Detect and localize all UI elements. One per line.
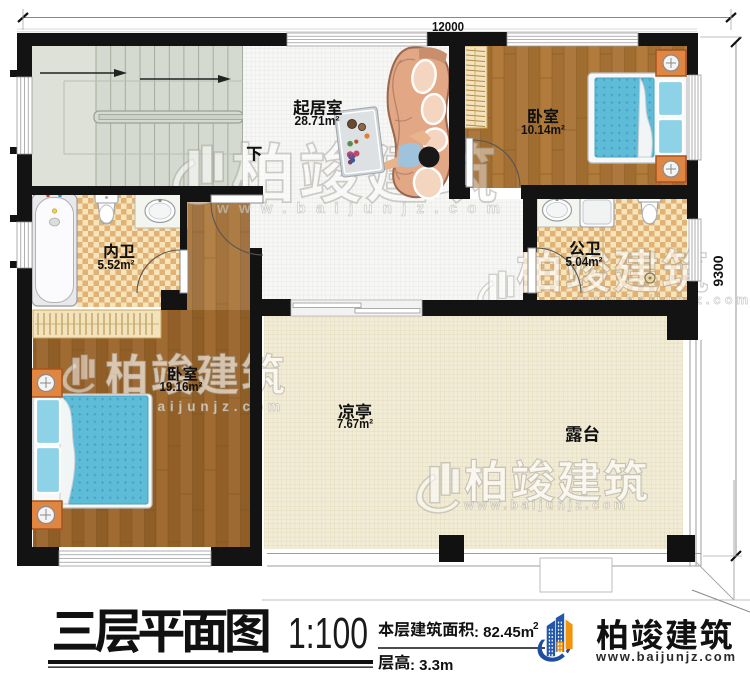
svg-text:28.71m²: 28.71m² — [295, 113, 341, 128]
svg-text:7.67m²: 7.67m² — [337, 417, 373, 431]
svg-text:: 82.45m: : 82.45m — [474, 624, 534, 641]
svg-text:19.16m²: 19.16m² — [160, 380, 203, 394]
svg-text:1:100: 1:100 — [288, 609, 368, 658]
svg-text:5.52m²: 5.52m² — [98, 258, 135, 272]
svg-text:2: 2 — [533, 621, 539, 632]
svg-text:: 3.3m: : 3.3m — [410, 657, 453, 674]
svg-text:10.14m²: 10.14m² — [521, 123, 565, 137]
svg-text:9300: 9300 — [710, 255, 726, 286]
svg-text:5.04m²: 5.04m² — [566, 255, 603, 269]
svg-text:12000: 12000 — [432, 19, 464, 34]
